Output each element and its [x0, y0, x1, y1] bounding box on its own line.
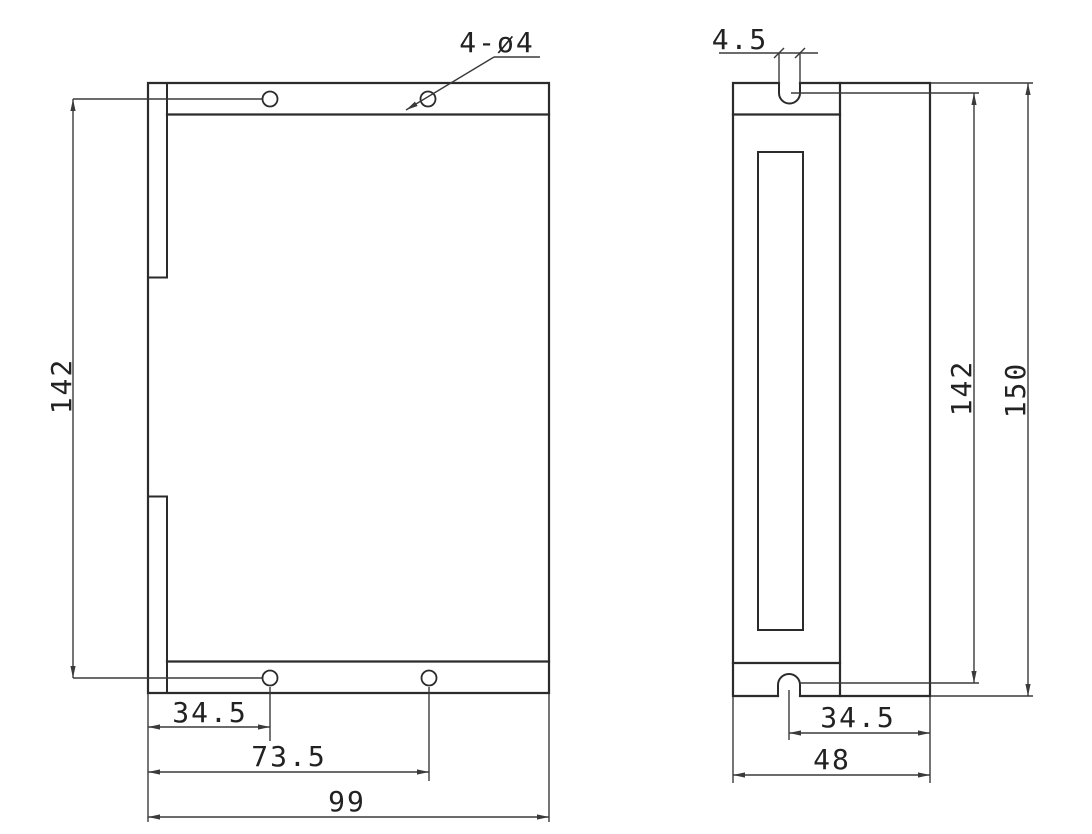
- dim-text: 34.5: [172, 696, 247, 729]
- dim-text: 4.5: [712, 23, 769, 56]
- dim-text: 142: [45, 358, 78, 415]
- callout-hole-diameter: 4-ø4: [406, 26, 540, 110]
- dim-front-hole-offset: 34.5: [148, 687, 270, 741]
- dim-text: 34.5: [820, 701, 895, 734]
- drawing-canvas: 4-ø4 142 34.5 73.5 99: [0, 0, 1092, 834]
- front-side-rail-upper: [148, 83, 167, 278]
- dim-text: 150: [999, 362, 1032, 419]
- dim-front-height: 142: [45, 99, 262, 678]
- front-outline: [148, 83, 549, 693]
- dim-text: 48: [813, 743, 851, 776]
- callout-text: 4-ø4: [459, 26, 534, 59]
- technical-drawing: 4-ø4 142 34.5 73.5 99: [0, 0, 1092, 834]
- dim-side-slot-center-height: 142: [791, 93, 979, 683]
- dim-text: 99: [328, 785, 366, 818]
- side-outline: [733, 83, 930, 696]
- dim-text: 73.5: [251, 740, 326, 773]
- dimension-annotations: 4-ø4 142 34.5 73.5 99: [45, 23, 1033, 822]
- side-window-slot: [758, 152, 803, 630]
- front-side-rail-lower: [148, 497, 167, 694]
- mounting-hole-top-left: [263, 92, 278, 107]
- front-view: [148, 83, 549, 693]
- side-view: [733, 83, 930, 696]
- dim-side-slot-offset: 34.5: [789, 690, 930, 783]
- mounting-hole-bottom-left: [263, 671, 278, 686]
- mounting-hole-bottom-right: [422, 671, 437, 686]
- dim-text: 142: [945, 360, 978, 417]
- dim-side-slot-width: 4.5: [712, 23, 818, 83]
